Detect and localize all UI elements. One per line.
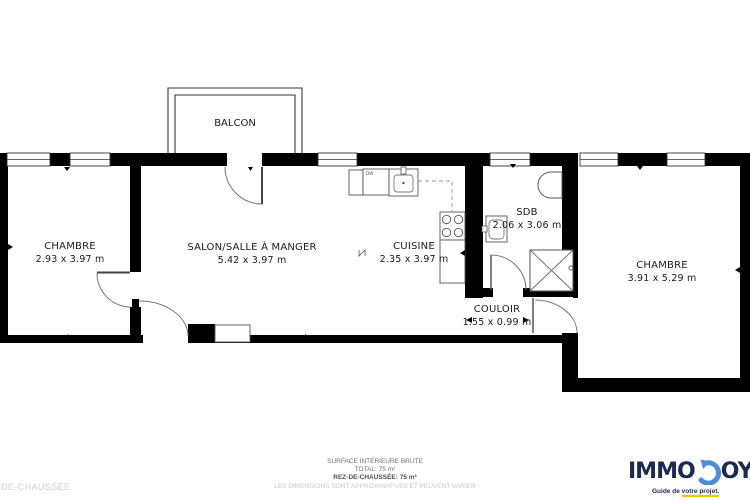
room-name: SALON/SALLE À MANGER	[187, 242, 316, 255]
brand-name-right: OYE	[721, 459, 750, 485]
room-name: CHAMBRE	[36, 241, 105, 254]
room-dims: 2.35 x 3.97 m	[380, 254, 449, 267]
tagline-prefix: Guide de	[652, 488, 682, 495]
room-dims: 1.55 x 0.99 m	[463, 317, 532, 330]
room-label-chambre-left: CHAMBRE 2.93 x 3.97 m	[36, 241, 105, 266]
floor-plan-drawing: DW	[0, 0, 750, 500]
room-name: CUISINE	[380, 241, 449, 254]
room-dims: 2.93 x 3.97 m	[36, 254, 105, 267]
floor-plan-page: DW	[0, 0, 750, 500]
balcony-label: BALCON	[214, 118, 256, 129]
room-name: COULOIR	[463, 304, 532, 317]
room-label-couloir: COULOIR 1.55 x 0.99 m	[463, 304, 532, 329]
tagline-highlight: votre projet.	[682, 488, 720, 497]
room-label-cuisine: CUISINE 2.35 x 3.97 m	[380, 241, 449, 266]
dishwasher-icon: DW	[363, 169, 389, 195]
stove-icon	[440, 212, 465, 240]
radiator-mark-icon	[359, 250, 365, 256]
room-label-sdb: SDB 2.06 x 3.06 m	[493, 207, 562, 232]
brand-name-left: IMMO	[628, 459, 695, 485]
room-dims: 3.91 x 5.29 m	[628, 273, 697, 286]
chambre-left-door	[97, 273, 130, 308]
radiator-icon	[215, 325, 250, 342]
kitchen-cabinet-icon	[349, 170, 363, 195]
brand-logo: IMMO OYE	[628, 459, 750, 485]
toilet-icon	[538, 172, 562, 198]
floor-tag: DE-CHAUSSÉE	[1, 482, 70, 492]
shower-icon	[530, 250, 573, 291]
brand-tagline: Guide de votre projet.	[652, 488, 750, 495]
room-dims: 5.42 x 3.97 m	[187, 255, 316, 268]
room-name: SDB	[493, 207, 562, 220]
sdb-door	[491, 255, 526, 290]
dishwasher-label: DW	[366, 171, 373, 176]
room-label-salon: SALON/SALLE À MANGER 5.42 x 3.97 m	[187, 242, 316, 267]
room-label-chambre-right: CHAMBRE 3.91 x 5.29 m	[628, 260, 697, 285]
brand-swirl-icon	[695, 459, 722, 485]
room-name: CHAMBRE	[628, 260, 697, 273]
kitchen-sink-icon	[389, 167, 418, 196]
room-dims: 2.06 x 3.06 m	[493, 220, 562, 233]
couloir-door	[533, 298, 577, 333]
balcony-door	[225, 167, 262, 204]
